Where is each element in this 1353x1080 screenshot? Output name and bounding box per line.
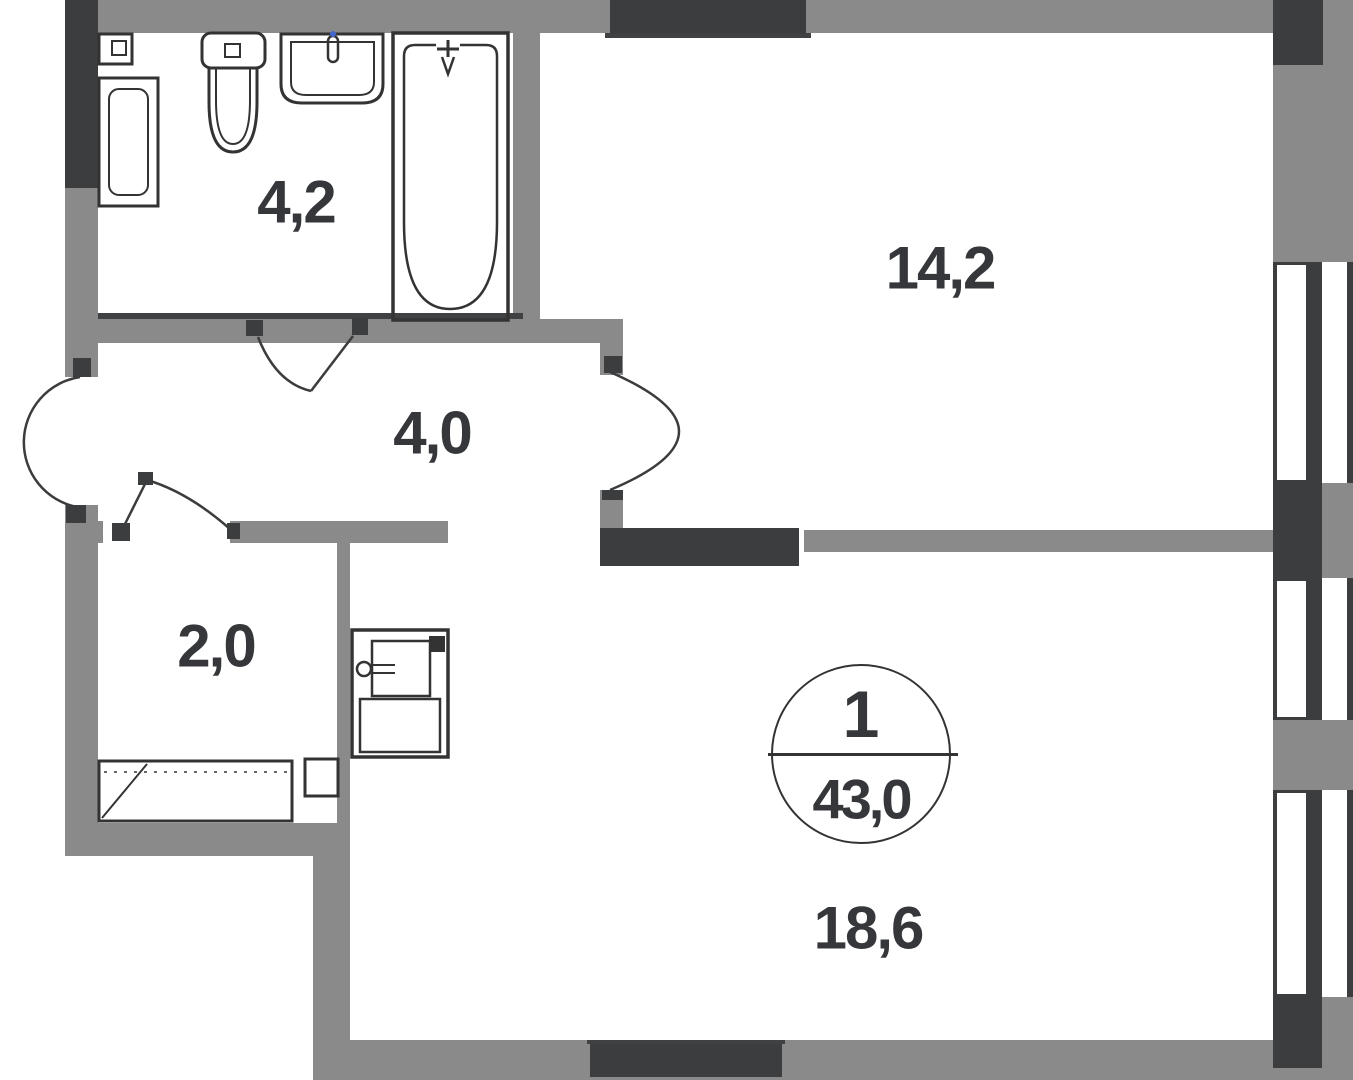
wardrobe-door-arc [147, 480, 230, 529]
bathroom-door-leaf [258, 337, 311, 391]
tub-faucet-icon [442, 57, 454, 74]
badge-total-area: 43,0 [813, 767, 910, 832]
entry-door-arc [24, 377, 80, 507]
room-door-arc [610, 372, 679, 490]
boiler-icon [99, 34, 132, 64]
washing-machine-icon [99, 78, 158, 206]
hall-cabinet-icon [305, 759, 338, 796]
badge-room-count: 1 [843, 676, 880, 752]
faucet-dot [330, 31, 336, 37]
label-hallway-area: 4,0 [393, 399, 470, 468]
badge-divider [768, 753, 958, 756]
label-bathroom-area: 4,2 [257, 168, 334, 237]
kitchen-sink-icon [352, 630, 448, 757]
apartment-badge: 1 43,0 [771, 664, 951, 844]
door-arcs [24, 336, 679, 530]
bathtub-icon [393, 33, 508, 320]
sink-icon [281, 31, 383, 103]
bathroom-door-arc [311, 336, 353, 391]
label-room-area: 14,2 [886, 234, 995, 303]
fixtures-layer [0, 0, 1353, 1080]
wardrobe-door-leaf [122, 480, 147, 530]
label-wardrobe-area: 2,0 [177, 612, 254, 681]
floor-plan: 4,2 14,2 4,0 2,0 18,6 1 43,0 [0, 0, 1353, 1080]
wardrobe-cabinet-icon [99, 761, 292, 821]
toilet-icon [202, 33, 265, 152]
label-living-area: 18,6 [814, 894, 923, 963]
